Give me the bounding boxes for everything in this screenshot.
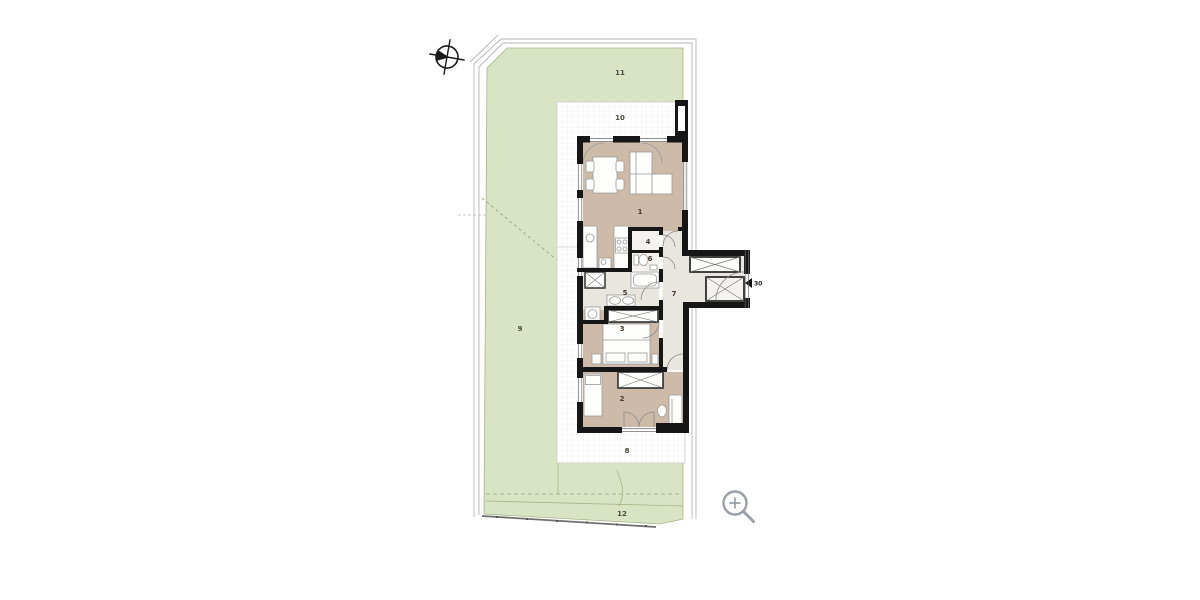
bedroom3-wardrobe-hatch: [608, 310, 658, 322]
washing-machine: [585, 307, 600, 321]
area-label-11: 11: [615, 69, 625, 77]
area-label-8: 8: [625, 447, 630, 455]
room-label-3: 3: [620, 325, 625, 333]
unit-number-label: 30: [754, 281, 762, 288]
entry-corridor: 30: [682, 250, 762, 308]
room-label-7: 7: [672, 290, 677, 298]
corridor-closet-hatch: [690, 257, 740, 272]
area-label-10: 10: [615, 114, 625, 122]
area-label-9: 9: [518, 325, 523, 333]
room-label-6: 6: [648, 255, 653, 263]
shaft-opening: [678, 106, 685, 131]
room-label-5: 5: [623, 289, 628, 297]
room-label-4: 4: [646, 238, 651, 246]
hallway-floor: [663, 231, 685, 370]
bathroom-sinks: [607, 295, 635, 306]
bathtub: [631, 272, 659, 288]
bedroom2-bed: [584, 374, 602, 416]
room-label-2: 2: [620, 395, 625, 403]
north-arrow-icon: [426, 36, 468, 78]
bath-cabinet-hatch: [585, 272, 605, 288]
area-label-12: 12: [617, 510, 627, 518]
floor-plan-viewport: 30: [0, 0, 1200, 600]
entry-mat-hatch: [706, 277, 744, 301]
bedroom2-wardrobe-hatch: [618, 372, 663, 388]
floor-plan-drawing: 30: [0, 0, 1200, 600]
zoom-in-icon[interactable]: [724, 492, 754, 522]
room-label-1: 1: [638, 208, 643, 216]
